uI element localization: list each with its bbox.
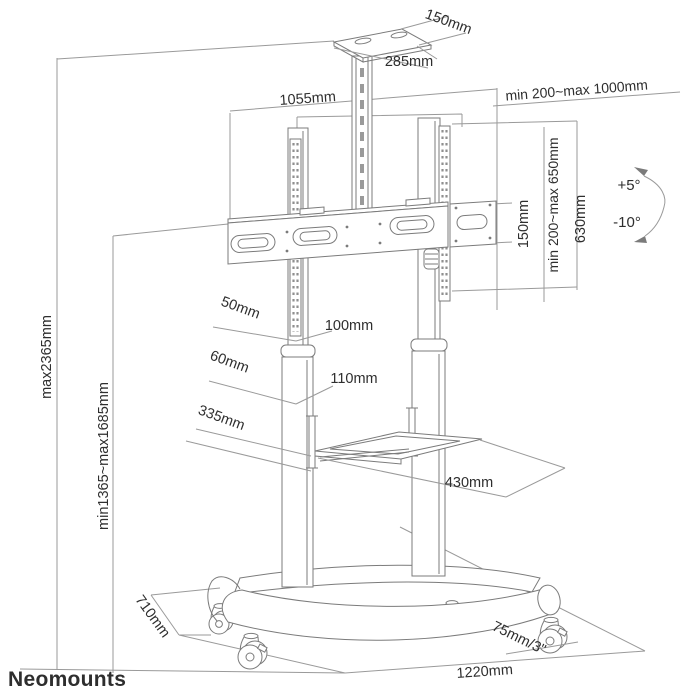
dim-shelf-width: 430mm — [445, 475, 493, 491]
center-pole — [352, 56, 372, 222]
left-column-lower-tube — [282, 357, 313, 587]
tightening-knob — [424, 249, 439, 269]
left-column-collar — [281, 345, 315, 357]
caster-front-left — [238, 633, 267, 669]
dim-lower-column-width: 60mm — [208, 348, 251, 377]
tilt-up-label: +5° — [617, 177, 640, 194]
base-rear-tube — [234, 565, 540, 594]
dim-top-shelf-depth: 150mm — [423, 6, 474, 38]
brand-watermark: Neomounts — [8, 668, 126, 691]
dim-top-shelf-width: 285mm — [385, 54, 433, 70]
right-column-lower-tube — [412, 351, 445, 576]
diagram-canvas: 150mm 285mm 1055mm min 200~max 1000mm 15… — [0, 0, 700, 700]
av-shelf — [306, 408, 482, 468]
right-column-collar — [411, 339, 447, 351]
stand-structure — [208, 29, 567, 669]
dim-columns-span: 1055mm — [279, 89, 336, 109]
dim-upper-column-width: 50mm — [219, 294, 262, 323]
dim-upper-column-depth: 100mm — [325, 318, 373, 334]
dim-bracket-height: 630mm — [573, 195, 589, 243]
dim-shelf-depth: 335mm — [196, 402, 247, 434]
dim-total-height: max2365mm — [39, 315, 55, 399]
dim-bracket-offset: 150mm — [516, 200, 532, 248]
dim-mount-height-range: min 200~max 650mm — [545, 137, 561, 272]
dim-screen-center-height: min1365~max1685mm — [96, 382, 112, 530]
dim-base-width: 1220mm — [456, 662, 513, 682]
clamp-hook-right — [406, 198, 430, 206]
tv-floor-stand-technical-drawing: 150mm 285mm 1055mm min 200~max 1000mm 15… — [0, 0, 700, 700]
crossbar — [228, 198, 496, 269]
dim-lower-column-depth: 110mm — [330, 371, 377, 387]
shelf-bracket-left — [309, 416, 315, 468]
tilt-down-label: -10° — [613, 214, 641, 231]
clamp-hook-left — [300, 207, 324, 215]
